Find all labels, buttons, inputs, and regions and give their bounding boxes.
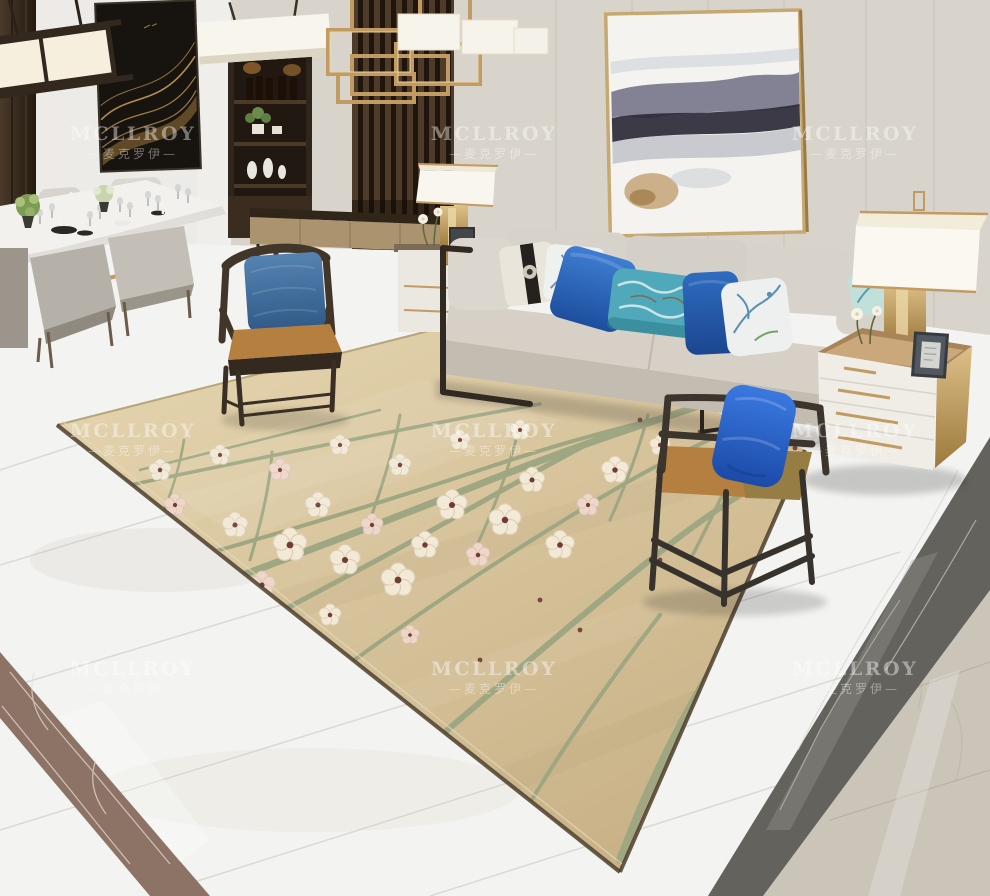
watermark <box>431 658 557 696</box>
pillow-floral-right <box>720 276 795 357</box>
watermark <box>70 123 196 161</box>
watermark <box>70 420 196 458</box>
watermark <box>431 123 557 161</box>
living-room-photo: MCLLROY —麦克罗伊— <box>0 0 990 896</box>
watermark <box>70 658 196 696</box>
abstract-painting <box>606 10 808 236</box>
watermark <box>792 123 918 161</box>
watermark <box>792 658 918 696</box>
photo-canvas: MCLLROY —麦克罗伊— <box>0 0 990 896</box>
photo-frame-right <box>913 333 948 377</box>
watermark <box>792 420 918 458</box>
watermark <box>431 420 557 458</box>
pillow-denim <box>243 251 326 332</box>
